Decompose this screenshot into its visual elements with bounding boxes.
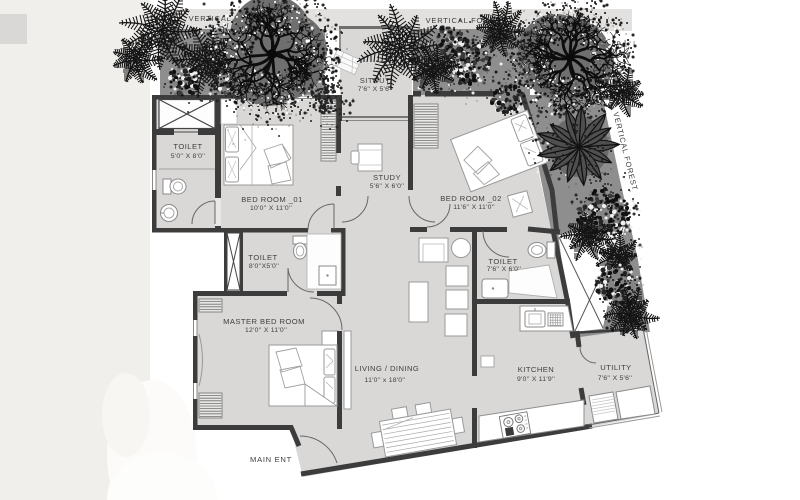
svg-text:7'6'' X 6'0'': 7'6'' X 6'0'' [487, 266, 521, 273]
svg-text:STUDY: STUDY [373, 173, 401, 182]
svg-text:12'0'' X 11'0'': 12'0'' X 11'0'' [245, 327, 287, 334]
svg-text:MASTER BED ROOM: MASTER BED ROOM [223, 317, 305, 326]
svg-text:7'6'' X 5'6'': 7'6'' X 5'6'' [598, 375, 632, 382]
svg-text:8'0''X5'0'': 8'0''X5'0'' [249, 263, 279, 270]
svg-text:11'6'' X 11'0'': 11'6'' X 11'0'' [453, 204, 495, 211]
svg-text:BED ROOM _01: BED ROOM _01 [241, 195, 303, 204]
svg-text:LIVING / DINING: LIVING / DINING [355, 364, 420, 373]
svg-text:5'0'' X 8'0'': 5'0'' X 8'0'' [171, 153, 205, 160]
svg-text:TOILET: TOILET [488, 257, 517, 266]
svg-text:TOILET: TOILET [248, 253, 277, 262]
svg-text:11'0'' x 18'0'': 11'0'' x 18'0'' [365, 377, 406, 384]
svg-text:TOILET: TOILET [173, 142, 202, 151]
svg-text:5'6'' X 6'0'': 5'6'' X 6'0'' [370, 183, 404, 190]
svg-text:7'6'' X 5'6'': 7'6'' X 5'6'' [358, 86, 392, 93]
svg-text:UTILITY: UTILITY [600, 363, 631, 372]
svg-text:MAIN ENT: MAIN ENT [250, 455, 292, 464]
svg-text:10'0'' X 11'0'': 10'0'' X 11'0'' [250, 205, 292, 212]
svg-text:KITCHEN: KITCHEN [518, 365, 554, 374]
svg-text:9'0'' X 11'9'': 9'0'' X 11'9'' [517, 376, 555, 383]
svg-text:BED ROOM _02: BED ROOM _02 [440, 194, 502, 203]
